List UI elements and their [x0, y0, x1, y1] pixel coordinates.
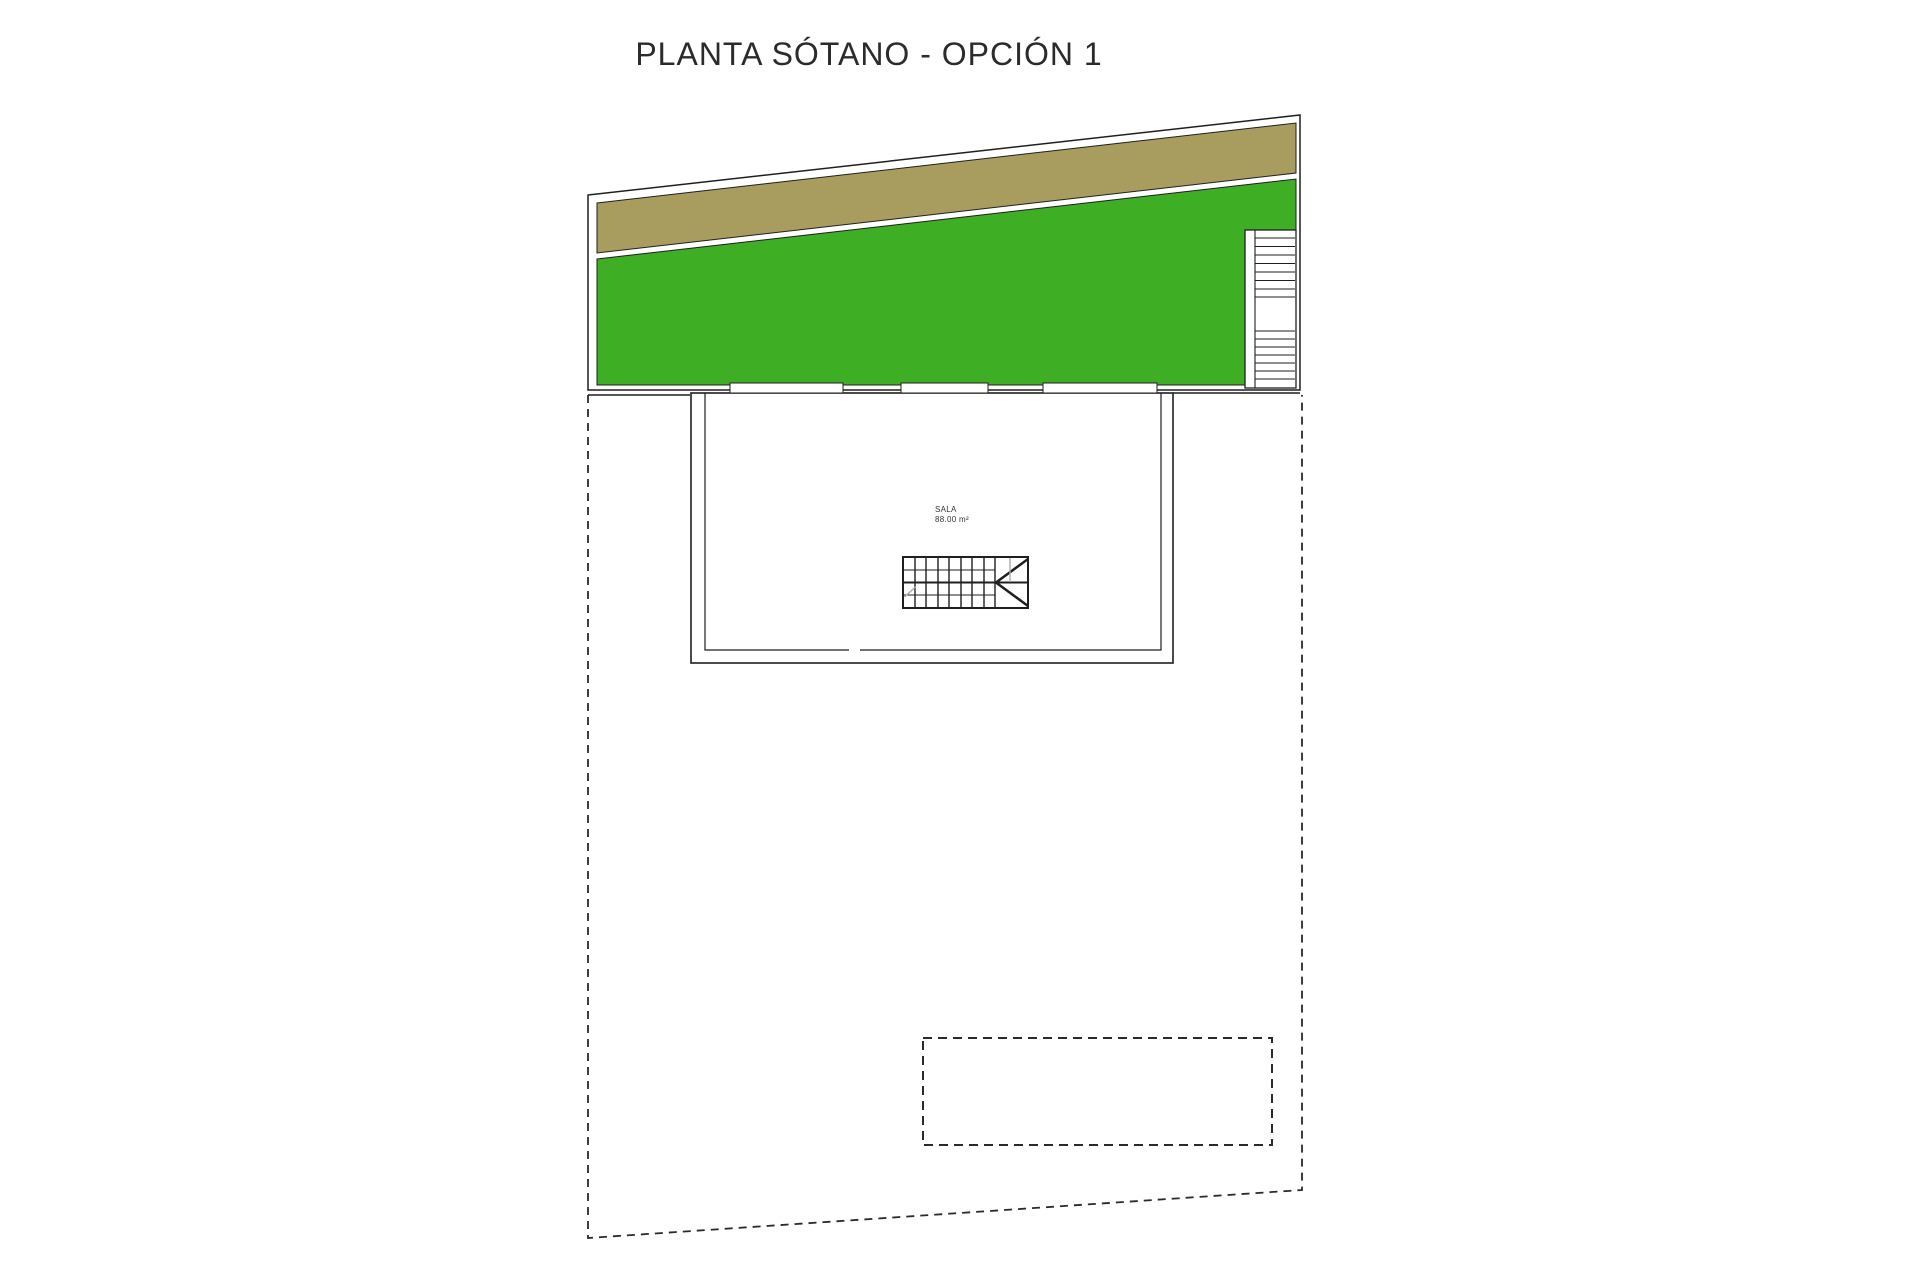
floor-plan: SALA 88.00 m²	[0, 0, 1920, 1280]
plan-sheet: PLANTA SÓTANO - OPCIÓN 1 SALA 88.00 m²	[0, 0, 1920, 1280]
exterior-stairs	[1245, 230, 1296, 388]
sala-area-label: 88.00 m²	[935, 515, 969, 524]
exterior-stairs-box	[1245, 230, 1296, 388]
sala-outer-wall	[691, 393, 1173, 663]
pool-dashed-outline	[923, 1038, 1272, 1145]
sala-label: SALA	[935, 505, 957, 514]
interior-stair-symbol	[903, 557, 1028, 608]
window-segment-3	[1043, 383, 1157, 393]
window-segment-2	[901, 383, 988, 393]
window-segment-1	[730, 383, 843, 393]
